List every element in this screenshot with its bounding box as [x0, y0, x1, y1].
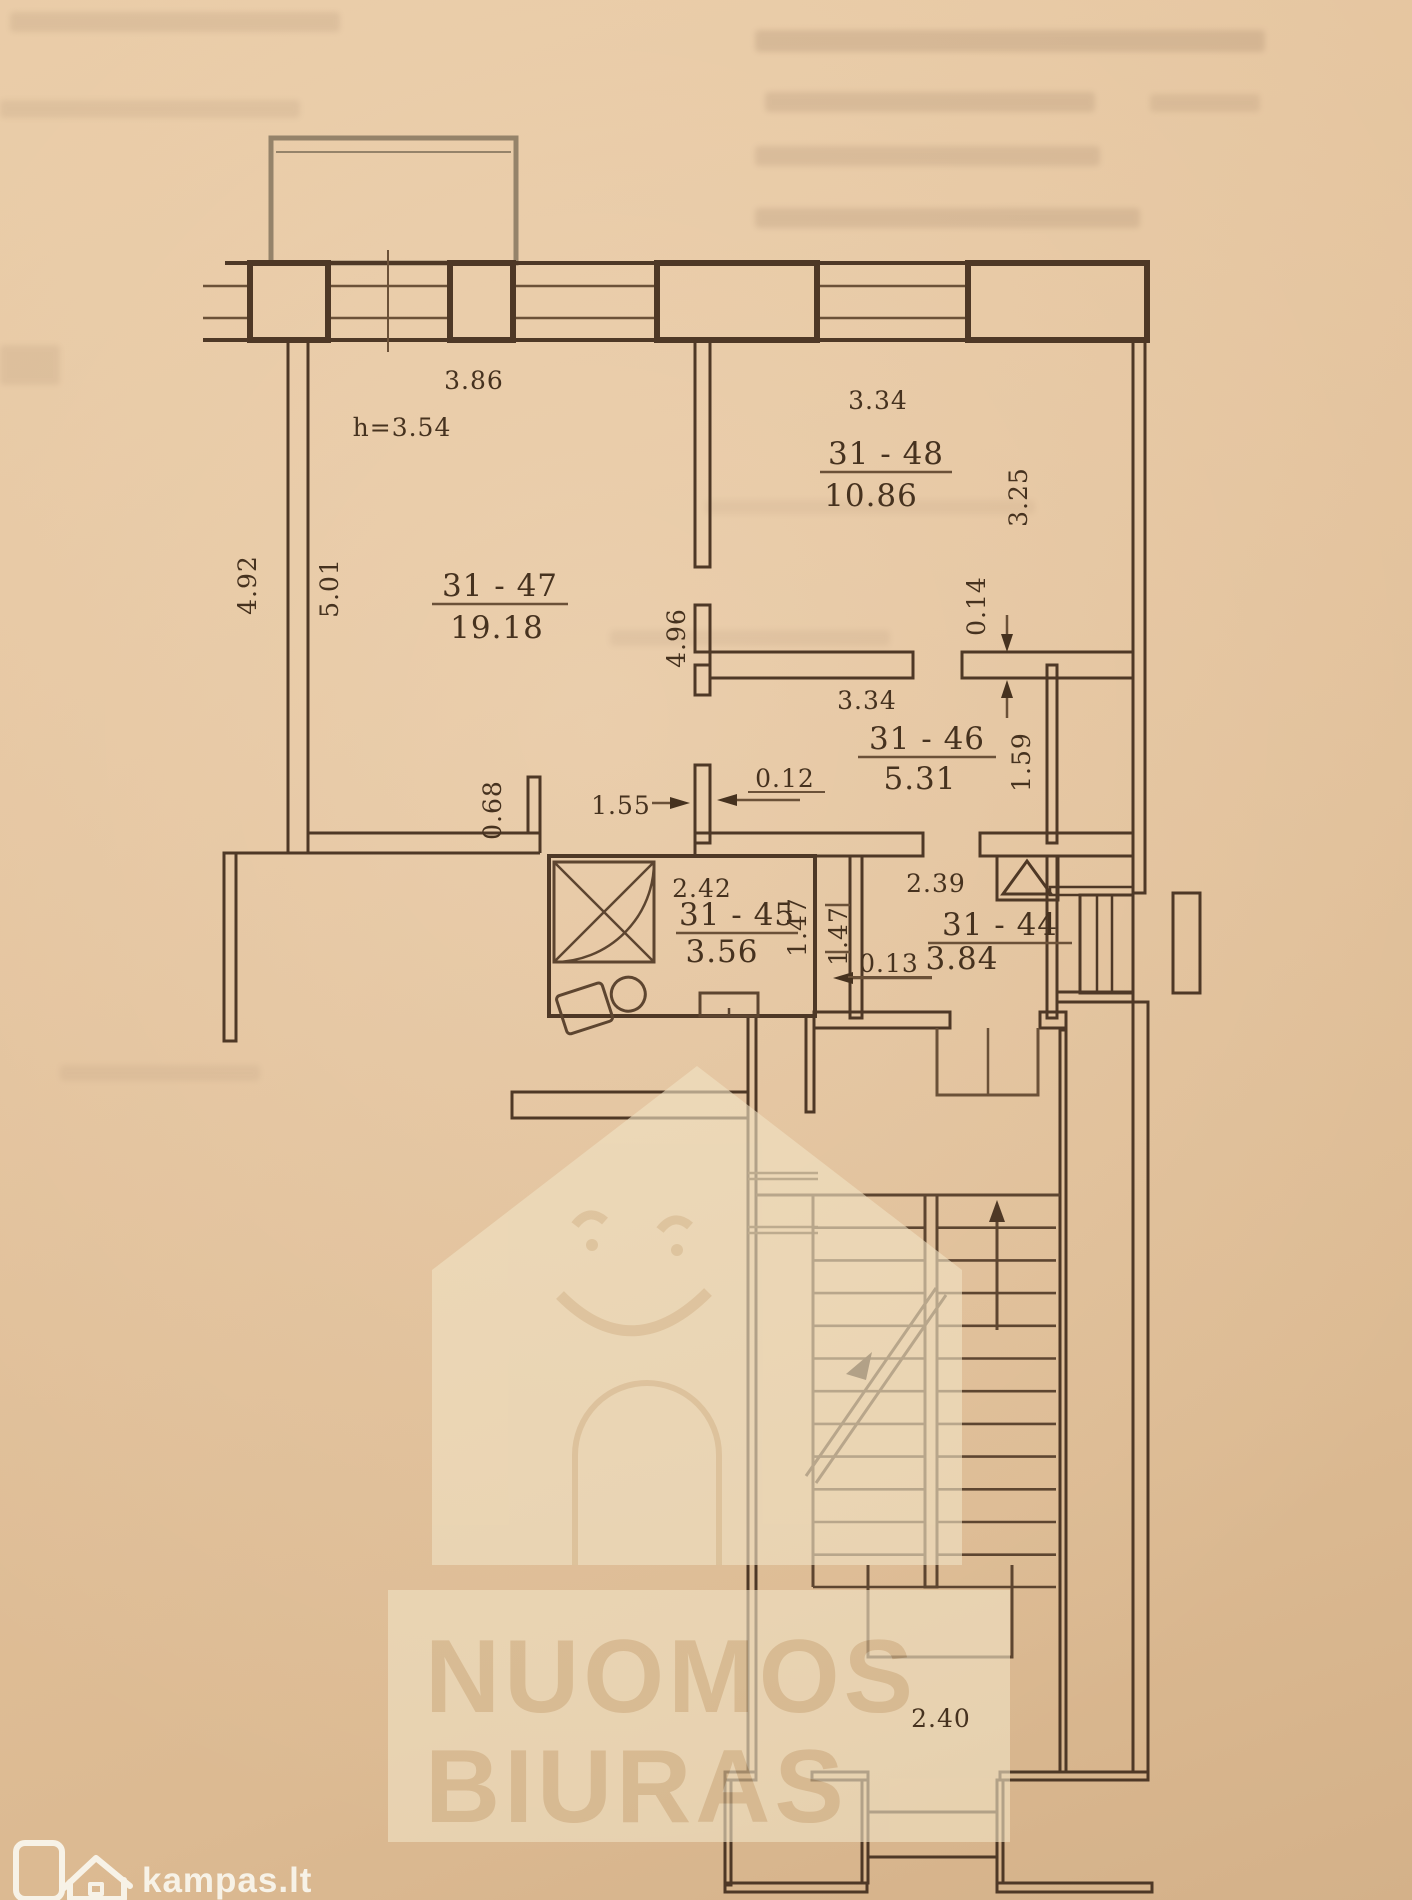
duct-shaft: [1050, 887, 1200, 1002]
floorplan-photo: NUOMOS BIURAS 3.86 h=3.54 31 - 47 19.18 …: [0, 0, 1412, 1900]
room48-area: 10.86: [824, 478, 918, 514]
kampas-logo-icon: [16, 1843, 130, 1899]
dim-room47-stub: 0.68: [478, 780, 507, 840]
room46-area: 5.31: [883, 761, 956, 797]
room44-id: 31 - 44: [942, 907, 1058, 943]
dim-room48-right: 3.25: [1004, 467, 1033, 527]
toilet-icon: [556, 970, 651, 1035]
dim-room47-door: 1.55: [591, 791, 651, 820]
floor-plan-drawing: NUOMOS BIURAS 3.86 h=3.54 31 - 47 19.18 …: [0, 0, 1412, 1900]
dim-room47-right: 4.96: [662, 608, 691, 668]
dim-room48-width: 3.34: [848, 386, 908, 415]
dim-left-outer: 4.92: [233, 555, 262, 615]
sink-icon: [700, 993, 758, 1016]
kampas-logo-text: kampas.lt: [142, 1861, 312, 1900]
kampas-logo: kampas.lt: [16, 1843, 312, 1900]
room44-area: 3.84: [925, 941, 998, 977]
dim-left-inner: 5.01: [315, 558, 344, 618]
dim-wall-thickness: 0.14: [962, 576, 991, 636]
window-glazing: [203, 286, 968, 318]
watermark-house-icon: [432, 1066, 962, 1565]
dim-bath-right: 1.47: [783, 897, 812, 957]
dim-room46-width: 3.34: [837, 686, 897, 715]
room45-id: 31 - 45: [679, 897, 795, 933]
room46-id: 31 - 46: [869, 721, 985, 757]
dim-hall-gap: 0.13: [859, 949, 919, 978]
wall-pillars: [250, 263, 1147, 340]
dim-hall-left: 1.47: [824, 906, 853, 966]
stairs-up-arrow: [989, 1200, 1005, 1330]
room48-id: 31 - 48: [828, 436, 944, 472]
dim-room47-width: 3.86: [444, 366, 504, 395]
watermark-line1: NUOMOS: [425, 1619, 917, 1735]
room47-area: 19.18: [450, 610, 544, 646]
dim-hall-width: 2.39: [906, 869, 966, 898]
balcony: [271, 138, 516, 263]
shower-icon: [554, 862, 654, 962]
watermark-line2: BIURAS: [425, 1729, 848, 1845]
dim-stairs-width: 2.40: [911, 1704, 971, 1733]
ceiling-height-label: h=3.54: [353, 413, 452, 442]
dim-room46-right: 1.59: [1007, 732, 1036, 792]
room47-id: 31 - 47: [442, 568, 558, 604]
room45-area: 3.56: [685, 934, 758, 970]
dim-wall-gap: 0.12: [755, 764, 815, 793]
